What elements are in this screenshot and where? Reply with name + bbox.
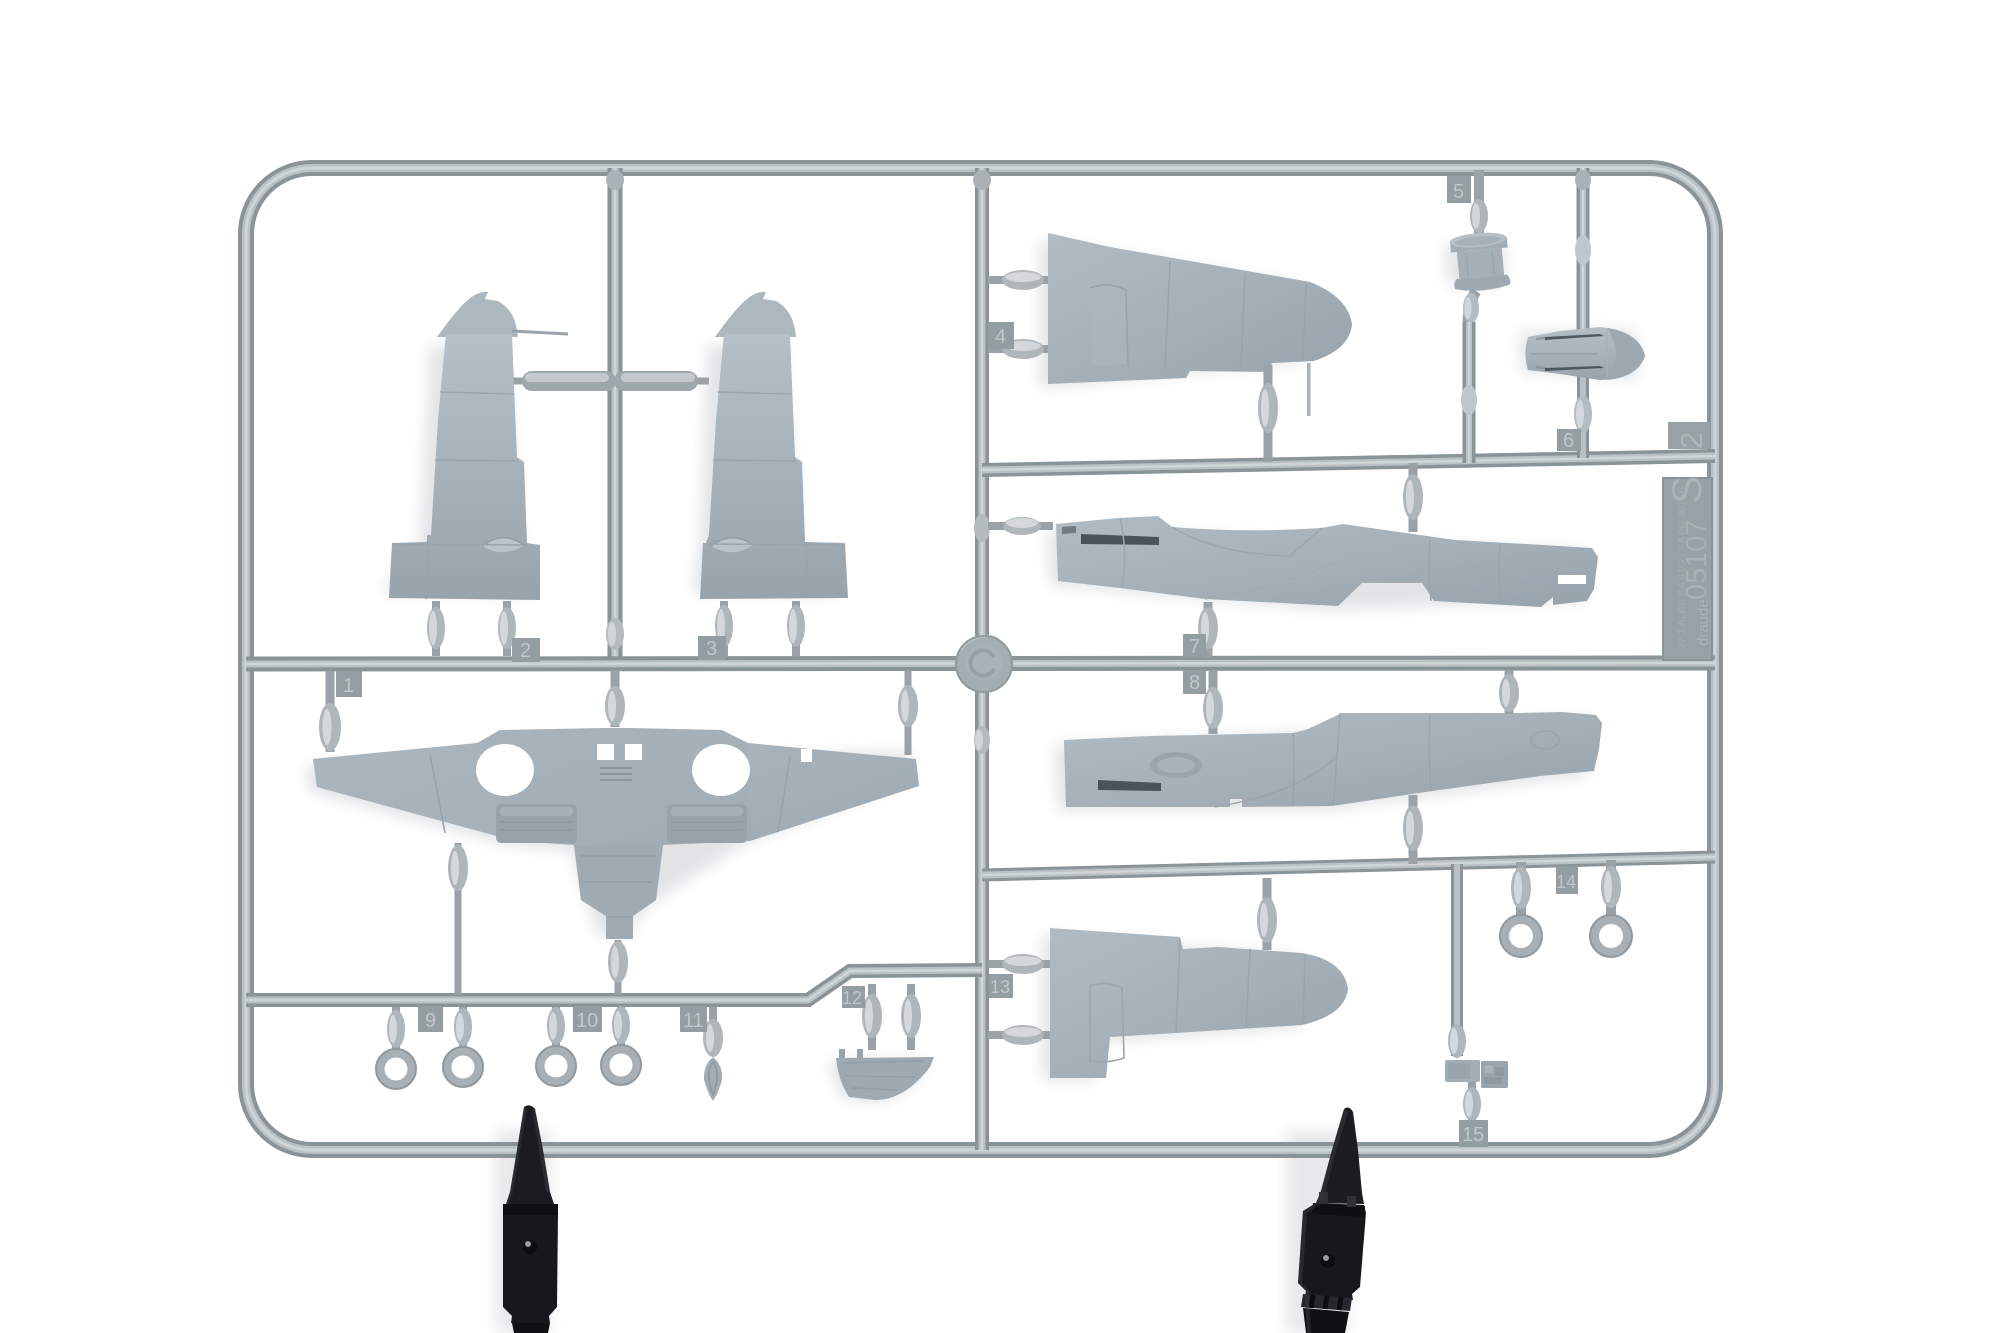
svg-text:6: 6 <box>1563 430 1574 452</box>
svg-text:12: 12 <box>842 988 862 1008</box>
svg-text:14: 14 <box>1556 872 1576 892</box>
svg-text:11: 11 <box>683 1010 704 1032</box>
svg-text:15: 15 <box>1462 1124 1484 1146</box>
svg-text:8: 8 <box>1189 672 1200 694</box>
svg-text:10: 10 <box>576 1010 598 1032</box>
svg-text:draude: draude <box>1695 599 1712 646</box>
svg-text:2: 2 <box>1674 432 1709 449</box>
svg-text:5: 5 <box>1453 181 1464 203</box>
svg-text:27:1 ALRE SA 41G / SA 6G 901FB: 27:1 ALRE SA 41G / SA 6G 901FB <box>1676 487 1688 649</box>
svg-text:2: 2 <box>520 640 531 662</box>
svg-text:7: 7 <box>1189 636 1200 658</box>
svg-text:3: 3 <box>706 638 717 660</box>
svg-text:4: 4 <box>995 326 1006 348</box>
svg-text:13: 13 <box>990 977 1010 997</box>
svg-text:1: 1 <box>343 675 354 697</box>
svg-text:9: 9 <box>425 1010 436 1032</box>
